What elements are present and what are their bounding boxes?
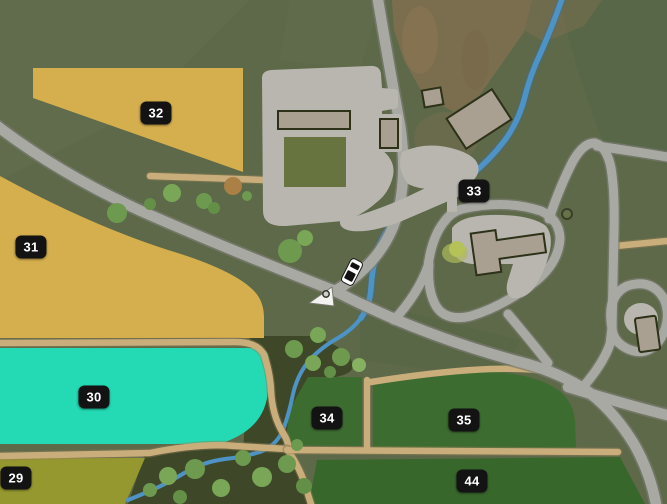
bush <box>449 241 465 257</box>
field-label-33[interactable]: 33 <box>458 180 489 203</box>
field-label-31[interactable]: 31 <box>15 236 46 259</box>
field-label-32[interactable]: 32 <box>140 102 171 125</box>
pond <box>562 209 572 219</box>
small-building <box>422 87 444 107</box>
field-label-30[interactable]: 30 <box>78 386 109 409</box>
map-canvas[interactable]: 32 31 30 29 33 34 35 44 <box>0 0 667 504</box>
field-label-34[interactable]: 34 <box>311 407 342 430</box>
field-label-35[interactable]: 35 <box>448 409 479 432</box>
field-label-44[interactable]: 44 <box>456 470 487 493</box>
field-label-29[interactable]: 29 <box>0 467 31 490</box>
shed-building <box>380 119 398 148</box>
field-30-shape <box>0 348 269 444</box>
barn-building <box>278 111 350 129</box>
farm-courtyard <box>284 137 346 187</box>
outbuilding <box>635 316 661 353</box>
